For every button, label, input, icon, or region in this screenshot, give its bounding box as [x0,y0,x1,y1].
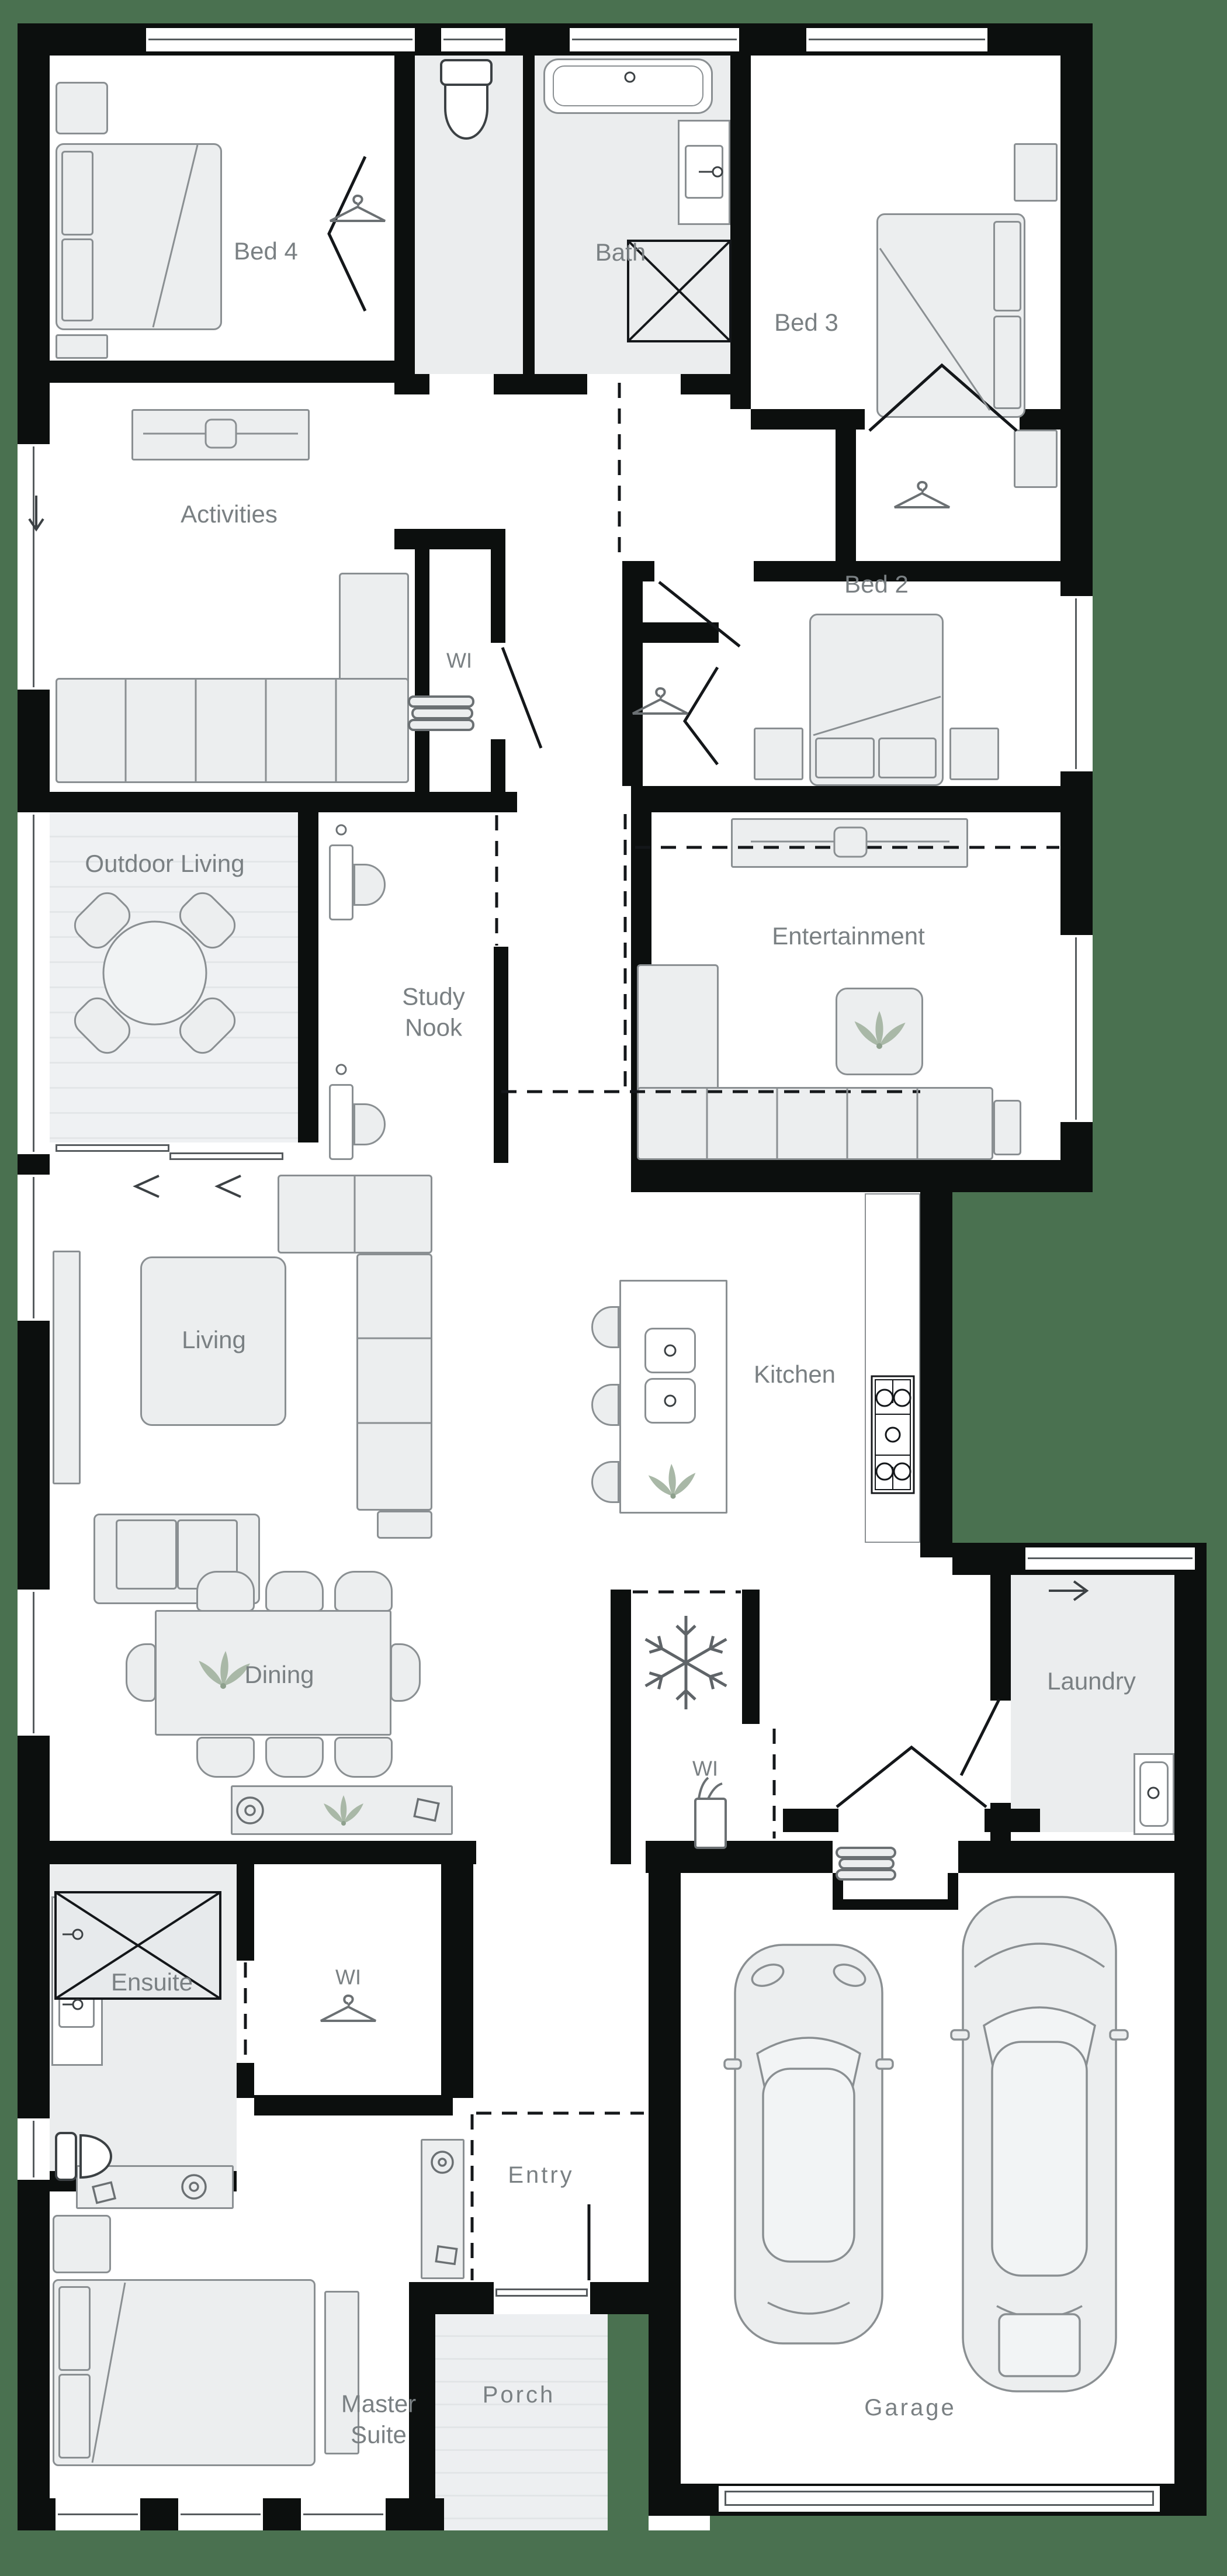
desk-lamp [337,825,346,835]
outdoor-table-set [69,887,240,1058]
car-small [725,1945,893,2343]
desk-lamp [337,1065,346,1074]
tv-mount [834,827,866,857]
tap [63,72,1159,2009]
floor-plan: Bed 4 Bath Bed 3 Activities WI Bed 2 Out… [0,0,1227,2576]
bed-fold [813,697,941,735]
slide-arrow-icon [136,1176,241,1197]
bed-fold [92,2283,125,2463]
bed3-robe-doors [869,365,1017,431]
towels-icon [409,697,895,1879]
robe-door [329,157,365,311]
room-label-master-suite: Master Suite [314,2389,443,2450]
plant-icon [196,1011,908,1826]
room-label-bed2: Bed 2 [844,569,909,600]
bowl-decor [182,1798,453,2198]
bed2-robe-door [685,667,718,764]
room-label-bed3: Bed 3 [774,307,838,338]
room-label-porch: Porch [483,2380,556,2409]
overlay [0,0,1227,2576]
hanger-icon [321,196,949,2021]
room-label-laundry: Laundry [1047,1666,1136,1697]
room-label-wi-linen: WI [446,648,472,674]
cooktop [872,1376,914,1493]
room-label-entry: Entry [508,2160,574,2190]
books-decor [93,1799,457,2265]
laundry-arrow-icon [1049,1581,1087,1600]
tv-bar [143,434,949,842]
room-label-wi-robe: WI [335,1964,361,1990]
car-large [951,1897,1128,2391]
snowflake-icon [641,1616,732,1709]
room-label-entertainment: Entertainment [772,921,924,952]
activities-arrow-icon [29,496,43,529]
toilet [56,2133,111,2180]
laundry-door [961,1699,999,1775]
bed-fold [880,248,990,410]
tv-mount [206,420,236,448]
bed-fold [153,145,197,327]
room-label-living: Living [182,1325,246,1356]
toilet [441,60,491,139]
room-label-activities: Activities [181,499,278,530]
room-label-bath: Bath [595,237,646,268]
sofa-divider [355,1176,431,1423]
linen-door [502,648,541,748]
room-label-outdoor-living: Outdoor Living [85,849,244,880]
sofa-divider [126,680,336,781]
hall-double-doors [837,1747,986,1807]
sofa-divider [707,1089,917,1158]
room-label-dining: Dining [244,1660,314,1691]
room-label-kitchen: Kitchen [754,1359,836,1390]
groceries-icon [695,1778,726,1848]
room-label-bed4: Bed 4 [234,236,298,267]
bed2-door [659,582,740,646]
room-label-garage: Garage [864,2393,956,2422]
room-label-ensuite: Ensuite [111,1967,193,1998]
room-label-wi-pantry: WI [692,1756,718,1782]
room-label-study-nook: Study Nook [384,982,483,1043]
